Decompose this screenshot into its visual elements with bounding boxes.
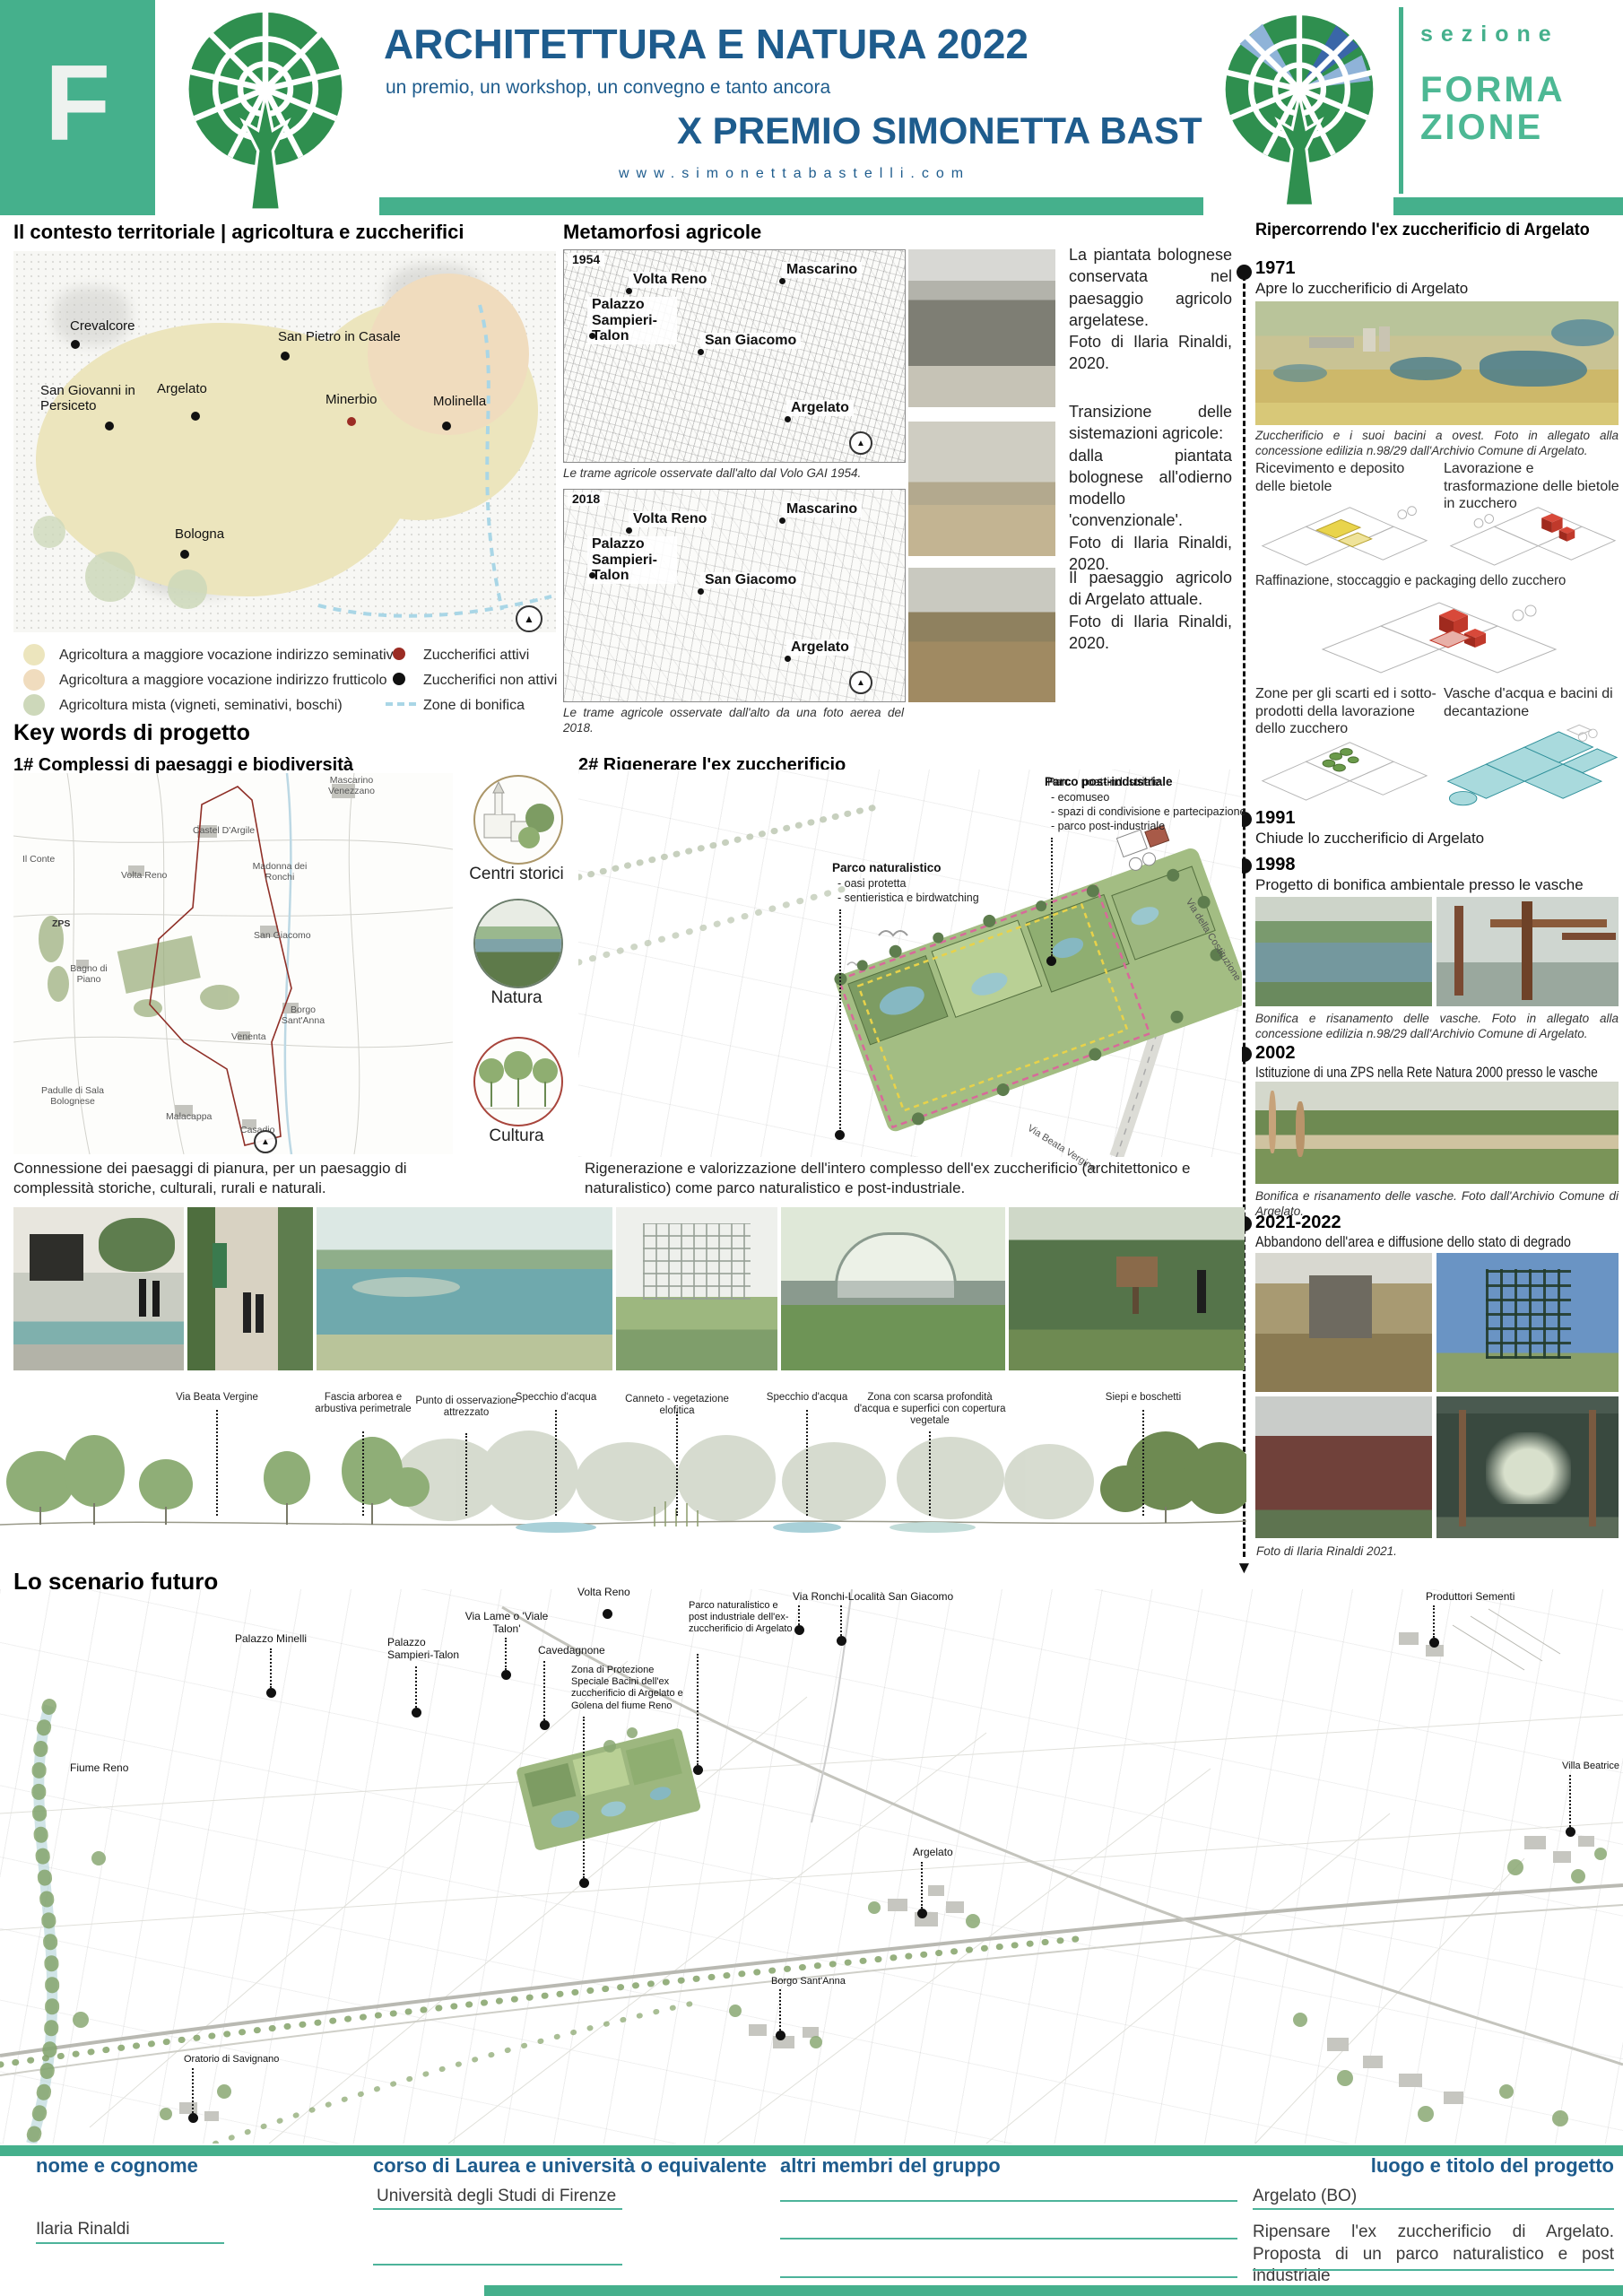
event-text: Istituzione di una ZPS nella Rete Natura… xyxy=(1255,1064,1598,1082)
legend-label: Zuccherifici attivi xyxy=(423,647,529,665)
section-name-line1: FORMA xyxy=(1420,70,1566,110)
scenario-leader xyxy=(840,1605,842,1636)
photo-note: La piantata bolognese conservata nel pae… xyxy=(1069,244,1232,375)
place-label: ZPS xyxy=(52,918,70,929)
section-letter-badge: F xyxy=(0,0,155,215)
scenario-label: Zona di Protezione Speciale Bacini dell'… xyxy=(571,1665,686,1712)
photo-paesaggio-attuale xyxy=(908,568,1055,702)
city-dot xyxy=(442,422,451,430)
place-label: Malacappa xyxy=(166,1111,212,1122)
diagram-lavorazione xyxy=(1444,495,1619,572)
city-dot xyxy=(71,340,80,349)
footer-label-name: nome e cognome xyxy=(36,2154,198,2178)
city-dot xyxy=(281,352,290,361)
photo-1998-impianti xyxy=(1436,897,1619,1006)
scenario-dot xyxy=(1566,1827,1575,1837)
profile-label: Via Beata Vergine xyxy=(172,1392,262,1404)
map-place-dot xyxy=(626,527,632,534)
footer-label-members: altri membri del gruppo xyxy=(780,2154,1001,2178)
legend-label: Agricoltura a maggiore vocazione indiriz… xyxy=(59,672,387,690)
profile-leader xyxy=(465,1433,467,1516)
annotation-item: - parco post-industriale xyxy=(1051,820,1165,834)
keywords-p2-caption: Rigenerazione e valorizzazione dell'inte… xyxy=(585,1159,1239,1198)
map-place-dot xyxy=(626,288,632,294)
footer-label-place-title: luogo e titolo del progetto xyxy=(1336,2154,1614,2178)
map-place-dot xyxy=(698,349,704,355)
map-place: Mascarino xyxy=(782,501,862,517)
scenario-dot xyxy=(776,2031,785,2040)
render-viewpoint xyxy=(1009,1207,1245,1370)
scenario-label: Via Ronchi-Località San Giacomo xyxy=(793,1590,953,1603)
place-label: Il Conte xyxy=(22,854,55,865)
event-text: Chiude lo zuccherificio di Argelato xyxy=(1255,830,1484,848)
tree-logo-icon xyxy=(171,4,360,210)
event-year: 2021-2022 xyxy=(1255,1213,1341,1233)
profile-leader xyxy=(1142,1410,1144,1516)
scenario-label: Palazzo Minelli xyxy=(235,1632,307,1645)
map-place-dot xyxy=(785,416,791,422)
profile-label: Fascia arborea e arbustiva perimetrale xyxy=(309,1392,417,1415)
profile-leader xyxy=(555,1410,557,1516)
annotation-item: - sentieristica e birdwatching xyxy=(838,891,979,904)
annotation-leader xyxy=(1051,838,1053,956)
scenario-leader xyxy=(697,1654,699,1765)
map-place-dot xyxy=(589,572,595,578)
scenario-label: Fiume Reno xyxy=(70,1761,128,1774)
render-structure xyxy=(616,1207,777,1370)
keywords-heading: Key words di progetto xyxy=(13,720,250,746)
scenario-leader xyxy=(543,1661,545,1720)
scenario-dot xyxy=(917,1909,927,1918)
map-year: 1954 xyxy=(568,253,604,266)
event-text: Progetto di bonifica ambientale presso l… xyxy=(1255,876,1584,894)
scenario-dot xyxy=(266,1688,276,1698)
event-title: ARCHITETTURA E NATURA 2022 xyxy=(384,20,1065,68)
vignette-label: Natura xyxy=(457,988,576,1008)
footer-value-university: Università degli Studi di Firenze xyxy=(377,2186,616,2208)
diagram-label: Zone per gli scarti ed i sotto-prodotti … xyxy=(1255,685,1439,738)
photo-caption-2021: Foto di Ilaria Rinaldi 2021. xyxy=(1256,1544,1525,1560)
scenario-dot xyxy=(603,1609,612,1619)
map-caption: Le trame agricole osservate dall'alto da… xyxy=(563,706,904,736)
render-path xyxy=(187,1207,313,1370)
footer-value-place: Argelato (BO) xyxy=(1253,2186,1357,2208)
place-label: Madonna dei Ronchi xyxy=(248,861,311,883)
map-place: Argelato xyxy=(786,639,854,656)
photo-degrado-3 xyxy=(1255,1396,1432,1538)
photo-transizione xyxy=(908,422,1055,556)
photo-caption-1971: Zuccherificio e i suoi bacini a ovest. F… xyxy=(1255,429,1619,459)
profile-label: Specchio d'acqua xyxy=(511,1392,601,1404)
place-label: Castel D'Argile xyxy=(193,825,255,836)
website-link[interactable]: www.simonettabastelli.com xyxy=(619,166,970,182)
legend-dot-nonattivi xyxy=(393,673,405,685)
render-pavilion xyxy=(13,1207,184,1370)
map-place: Volta Reno xyxy=(629,511,711,527)
map-place-dot xyxy=(779,517,785,524)
city-label: Molinella xyxy=(433,395,486,410)
compass-icon: ▲ xyxy=(849,431,872,455)
footer-underline xyxy=(373,2208,622,2210)
city-label: Minerbio xyxy=(325,393,378,408)
vignette-centri-storici xyxy=(473,775,563,865)
photo-2002-zps xyxy=(1255,1082,1619,1184)
annotation-item: - ecomuseo xyxy=(1051,791,1109,805)
diagram-vasche xyxy=(1439,721,1619,811)
profile-label: Siepi e boschetti xyxy=(1098,1392,1188,1404)
header-divider xyxy=(1399,7,1403,194)
diagram-scarti xyxy=(1255,734,1430,805)
legend-swatch-seminativo xyxy=(23,644,45,665)
diagram-label: Raffinazione, stoccaggio e packaging del… xyxy=(1255,572,1566,590)
scenario-dot xyxy=(188,2113,198,2123)
map-place: Mascarino xyxy=(782,262,862,278)
map-place-dot xyxy=(698,588,704,595)
place-label: Padulle di Sala Bolognese xyxy=(37,1085,108,1107)
scenario-label: Volta Reno xyxy=(577,1586,630,1598)
city-dot-red xyxy=(347,417,356,426)
event-year: 1991 xyxy=(1255,808,1296,829)
scenario-label: Argelato xyxy=(913,1846,953,1858)
footer-label-course: corso di Laurea e università o equivalen… xyxy=(373,2154,767,2178)
map-place-dot xyxy=(779,278,785,284)
scenario-dot xyxy=(1429,1638,1439,1648)
diagram-label: Vasche d'acqua e bacini di decantazione xyxy=(1444,685,1623,720)
scenario-leader xyxy=(415,1666,417,1708)
legend-dash-bonifica xyxy=(386,702,416,706)
tree-logo-blue-icon xyxy=(1214,5,1384,207)
legend-label: Agricoltura a maggiore vocazione indiriz… xyxy=(59,647,402,665)
event-year: 1971 xyxy=(1255,258,1296,279)
render-greenhouse xyxy=(781,1207,1005,1370)
photo-1998-vasche xyxy=(1255,897,1432,1006)
scenario-dot xyxy=(501,1670,511,1680)
map-2018: 2018 Volta Reno Mascarino Palazzo Sampie… xyxy=(563,489,906,702)
footer-underline-blank xyxy=(780,2238,1237,2239)
annotation-title: Parco post-industriale xyxy=(1045,775,1173,788)
place-label: Mascarino Venezzano xyxy=(316,775,387,796)
place-label: Borgo Sant'Anna xyxy=(275,1004,331,1026)
scenario-dot xyxy=(837,1636,846,1646)
scenario-leader xyxy=(1569,1775,1571,1827)
place-label: San Giacomo xyxy=(254,930,311,941)
compass-icon: ▲ xyxy=(849,671,872,694)
scenario-label: Cavedagnone xyxy=(538,1644,605,1657)
legend-dot-attivi xyxy=(393,648,405,660)
prize-title: X PREMIO SIMONETTA BASTELLI xyxy=(677,109,1251,152)
territorio-map: Crevalcore San Pietro in Casale San Giov… xyxy=(13,251,556,632)
timeline-arrow-icon: ▼ xyxy=(1236,1559,1253,1578)
map-1954: 1954 Volta Reno Mascarino Palazzo Sampie… xyxy=(563,249,906,463)
legend-swatch-mista xyxy=(23,694,45,716)
profile-leader xyxy=(216,1410,218,1516)
map-place-dot xyxy=(589,333,595,339)
annotation-leader xyxy=(839,909,841,1132)
city-label: San Giovanni in Persiceto xyxy=(40,384,139,413)
event-year: 2002 xyxy=(1255,1043,1296,1064)
scenario-label: Oratorio di Savignano xyxy=(184,2054,279,2066)
map-place-dot xyxy=(785,656,791,662)
footer-value-title: Ripensare l'ex zuccherificio di Argelato… xyxy=(1253,2222,1614,2288)
annotation-item: - oasi protetta xyxy=(838,877,906,890)
scenario-leader xyxy=(505,1638,507,1670)
vignette-natura xyxy=(473,899,563,988)
scenario-label: Via Lame o 'Viale Talon' xyxy=(462,1610,551,1636)
map-place: Argelato xyxy=(786,400,854,416)
photo-note: Transizione delle sistemazioni agricole:… xyxy=(1069,401,1232,575)
bonifica-lines xyxy=(13,251,556,632)
scenario-leader xyxy=(798,1605,800,1625)
legend-swatch-frutticolo xyxy=(23,669,45,691)
profile-leader xyxy=(929,1431,931,1516)
event-text: Apre lo zuccherificio di Argelato xyxy=(1255,280,1468,298)
photo-degrado-4 xyxy=(1436,1396,1619,1538)
metamorfosi-heading: Metamorfosi agricole xyxy=(563,221,761,244)
photo-degrado-2 xyxy=(1436,1253,1619,1392)
scenario-dot xyxy=(540,1720,550,1730)
scenario-dot xyxy=(579,1878,589,1888)
scenario-dot xyxy=(412,1708,421,1718)
footer-underline xyxy=(1253,2208,1614,2210)
competition-poster: F ARCHITETTURA E NATURA 2022 un premio, … xyxy=(0,0,1623,2296)
profile-leader xyxy=(676,1412,678,1516)
place-label: Venenta xyxy=(231,1031,266,1042)
keywords-map: Mascarino Venezzano Castel D'Argile Il C… xyxy=(13,773,453,1154)
profile-label: Punto di osservazione attrezzato xyxy=(414,1396,518,1419)
compass-icon: ▲ xyxy=(254,1130,277,1153)
photo-piantata xyxy=(908,249,1055,407)
annotation-dot xyxy=(1046,956,1056,966)
city-label: Crevalcore xyxy=(70,319,135,335)
profile-leader xyxy=(806,1410,808,1516)
map-place: Palazzo Sampieri-Talon xyxy=(587,297,677,344)
logo-plate-left xyxy=(155,0,379,217)
annotation-dot xyxy=(835,1130,845,1140)
profile-leader xyxy=(362,1431,364,1516)
photo-caption-1998: Bonifica e risanamento delle vasche. Fot… xyxy=(1255,1012,1619,1042)
scenario-leader xyxy=(779,1989,781,2031)
render-lake xyxy=(317,1207,612,1370)
city-label: Bologna xyxy=(175,527,224,543)
territorio-heading: Il contesto territoriale | agricoltura e… xyxy=(13,221,464,244)
logo-plate-right xyxy=(1203,0,1393,217)
city-label: San Pietro in Casale xyxy=(278,330,401,345)
timeline-heading: Ripercorrendo l'ex zuccherificio di Arge… xyxy=(1255,221,1590,240)
profile-label: Specchio d'acqua xyxy=(762,1392,852,1404)
scenario-label: Parco naturalistico e post industriale d… xyxy=(689,1600,794,1636)
vignette-label: Centri storici xyxy=(457,865,576,884)
place-label: Bagno di Piano xyxy=(63,963,115,985)
scenario-dot xyxy=(693,1765,703,1775)
scenario-leader xyxy=(192,2068,194,2113)
footer-value-name: Ilaria Rinaldi xyxy=(36,2219,130,2241)
scenario-dot xyxy=(794,1625,804,1635)
event-subtitle: un premio, un workshop, un convegno e ta… xyxy=(386,77,1013,99)
footer-underline xyxy=(36,2242,224,2244)
event-year: 1998 xyxy=(1255,855,1296,875)
photo-note: Il paesaggio agricolo di Argelato attual… xyxy=(1069,567,1232,654)
map-year: 2018 xyxy=(568,492,604,506)
footer-underline-blank xyxy=(780,2276,1237,2278)
map-place: San Giacomo xyxy=(700,333,801,349)
scenario-leader xyxy=(583,1717,585,1878)
compass-icon: ▲ xyxy=(516,605,542,632)
city-dot xyxy=(105,422,114,430)
photo-degrado-1 xyxy=(1255,1253,1432,1392)
diagram-raffinazione xyxy=(1305,594,1574,680)
diagram-bietole-deposito xyxy=(1255,495,1430,572)
map-place: San Giacomo xyxy=(700,572,801,588)
map-caption: Le trame agricole osservate dall'alto da… xyxy=(563,466,904,482)
scenario-label: Borgo Sant'Anna xyxy=(771,1976,846,1987)
scenario-leader xyxy=(270,1648,272,1688)
city-dot xyxy=(191,412,200,421)
legend-label: Zone di bonifica xyxy=(423,697,525,715)
vignette-label: Cultura xyxy=(457,1126,576,1146)
scenario-label: Palazzo Sampieri-Talon xyxy=(387,1636,473,1662)
keywords-p1-caption: Connessione dei paesaggi di pianura, per… xyxy=(13,1159,480,1198)
footer-underline-blank xyxy=(373,2264,622,2266)
legend-label: Zuccherifici non attivi xyxy=(423,672,557,690)
event-text: Abbandono dell'area e diffusione dello s… xyxy=(1255,1233,1571,1251)
city-dot xyxy=(180,550,189,559)
bottom-band xyxy=(484,2285,1623,2296)
scenario-label: Produttori Sementi xyxy=(1426,1590,1515,1603)
city-label: Argelato xyxy=(157,382,207,397)
scenario-label: Villa Beatrice xyxy=(1562,1761,1619,1772)
annotation-item: - spazi di condivisione e partecipazione xyxy=(1051,805,1246,820)
section-label: sezione xyxy=(1420,22,1559,48)
footer-underline-blank xyxy=(780,2200,1237,2202)
scenario-leader xyxy=(1433,1605,1435,1638)
profile-label: Zona con scarsa profondità d'acqua e sup… xyxy=(854,1392,1006,1428)
section-name-line2: ZIONE xyxy=(1420,108,1543,148)
map-place: Palazzo Sampieri-Talon xyxy=(587,536,677,584)
footer-underline xyxy=(1253,2269,1614,2271)
annotation-title: Parco naturalistico xyxy=(832,861,942,874)
legend-label: Agricoltura mista (vigneti, seminativi, … xyxy=(59,697,343,715)
photo-aerial-1971 xyxy=(1255,301,1619,425)
scenario-leader xyxy=(921,1862,923,1909)
place-label: Volta Reno xyxy=(121,870,167,881)
timeline-dot-1971 xyxy=(1237,265,1252,280)
section-letter: F xyxy=(45,41,110,165)
vignette-cultura xyxy=(473,1037,563,1126)
map-place: Volta Reno xyxy=(629,272,711,288)
diagram-label: Ricevimento e deposito delle bietole xyxy=(1255,460,1435,495)
